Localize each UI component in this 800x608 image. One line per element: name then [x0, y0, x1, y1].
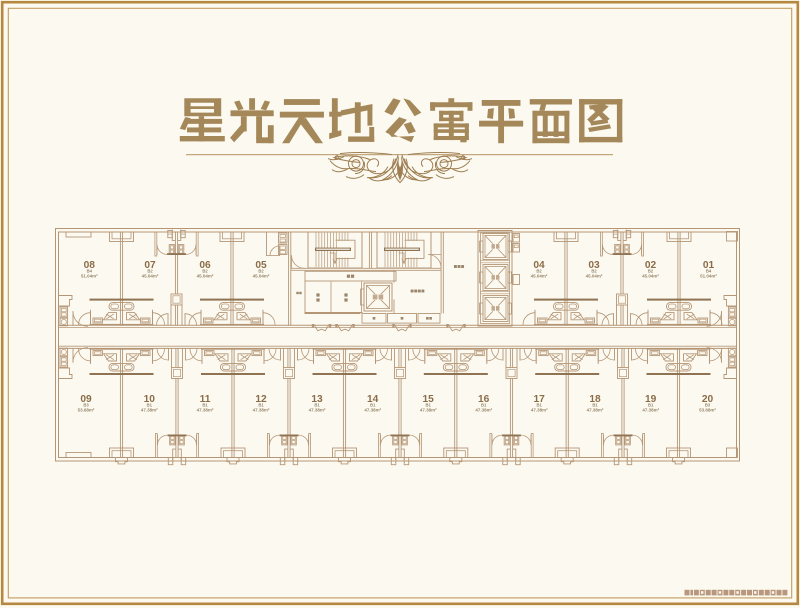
svg-text:51.04m²: 51.04m²	[81, 273, 98, 278]
svg-text:47.38m²: 47.38m²	[475, 407, 492, 412]
svg-text:47.38m²: 47.38m²	[364, 407, 381, 412]
svg-text:47.38m²: 47.38m²	[642, 407, 659, 412]
svg-text:45.04m²: 45.04m²	[142, 273, 159, 278]
svg-text:53.68m²: 53.68m²	[78, 407, 95, 412]
svg-text:47.38m²: 47.38m²	[141, 407, 158, 412]
svg-text:45.04m²: 45.04m²	[586, 273, 603, 278]
svg-text:47.38m²: 47.38m²	[309, 407, 326, 412]
svg-text:45.04m²: 45.04m²	[197, 273, 214, 278]
svg-text:47.38m²: 47.38m²	[253, 407, 270, 412]
svg-text:47.38m²: 47.38m²	[197, 407, 214, 412]
svg-text:53.68m²: 53.68m²	[699, 407, 716, 412]
svg-text:51.04m²: 51.04m²	[700, 273, 717, 278]
svg-text:47.38m²: 47.38m²	[420, 407, 437, 412]
svg-text:47.38m²: 47.38m²	[587, 407, 604, 412]
svg-text:45.04m²: 45.04m²	[531, 273, 548, 278]
svg-text:47.38m²: 47.38m²	[531, 407, 548, 412]
svg-text:45.04m²: 45.04m²	[642, 273, 659, 278]
svg-text:45.04m²: 45.04m²	[253, 273, 270, 278]
